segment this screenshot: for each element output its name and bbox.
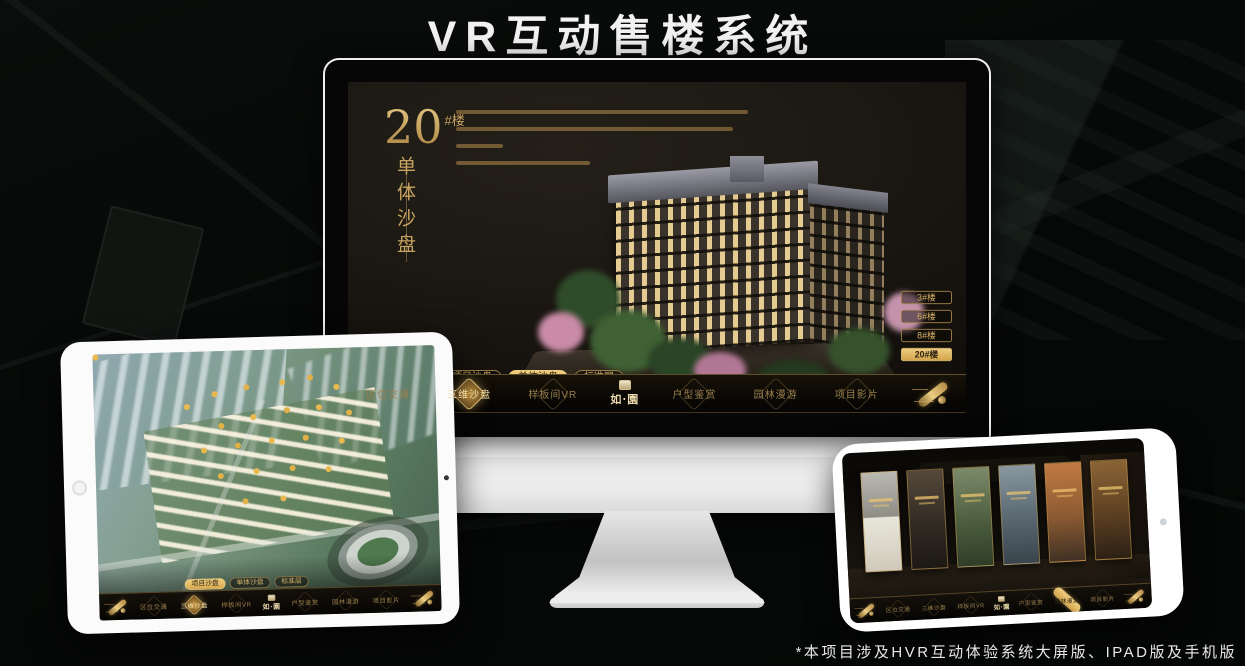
panel-label	[1052, 488, 1076, 492]
brand-logo-text: 如·園	[994, 602, 1011, 612]
floor-button-6[interactable]: 6#楼	[901, 310, 952, 323]
floor-button-8[interactable]: 8#楼	[901, 329, 952, 342]
nav-item-garden-tour[interactable]: 园林漫游	[1052, 592, 1082, 609]
gallery-panel[interactable]	[952, 466, 994, 568]
nav-item-floorplans[interactable]: 户型鉴赏	[289, 593, 322, 611]
page-title: VR互动售楼系统	[0, 2, 1245, 64]
description-line	[456, 144, 503, 148]
description-line	[456, 127, 733, 131]
nav-item-floorplans[interactable]: 户型鉴赏	[668, 380, 720, 407]
brand-logo-text: 如·園	[610, 391, 639, 407]
subtab-single-sandbox[interactable]: 单体沙盘	[230, 577, 271, 589]
seal-icon	[619, 380, 631, 390]
footnote-caption: *本项目涉及HVR互动体验系统大屏版、IPAD版及手机版	[796, 641, 1237, 662]
panel-label	[869, 498, 893, 502]
nav-item-project-film[interactable]: 项目影片	[831, 380, 883, 407]
nav-item-location[interactable]: 区位交通	[137, 597, 170, 615]
gallery-panel[interactable]	[860, 471, 902, 573]
promo-canvas: VR互动售楼系统 20#楼 单体沙盘	[0, 0, 1245, 666]
nav-item-project-film[interactable]: 项目影片	[1088, 590, 1118, 607]
tablet-home-button[interactable]	[72, 480, 87, 495]
phone-device: 区位交通 三维沙盘 样板间VR 如·園 户型鉴赏 园林漫游 项目影片	[831, 427, 1184, 633]
floor-button-20[interactable]: 20#楼	[901, 348, 952, 361]
building-number: 20	[384, 100, 443, 154]
background-plaque	[82, 205, 205, 347]
scene-gallery	[860, 459, 1132, 573]
gallery-panel[interactable]	[1090, 459, 1132, 561]
model-side-facade	[810, 199, 884, 350]
description-line	[456, 110, 748, 114]
scroll-icon[interactable]	[1123, 587, 1146, 605]
building-title: 20#楼 单体沙盘	[384, 104, 465, 276]
title-divider	[406, 166, 407, 262]
panel-label	[961, 493, 985, 497]
seal-icon	[998, 596, 1005, 602]
tablet-device: 项目沙盘 单体沙盘 标准层 区位交通 三维沙盘 样板间VR 如·園 户型鉴赏 园…	[60, 332, 460, 635]
brand-logo: 如·園	[262, 594, 280, 611]
nav-item-garden-tour[interactable]: 园林漫游	[750, 380, 802, 407]
model-roof-tower	[730, 156, 764, 182]
nav-item-showroom-vr[interactable]: 样板间VR	[955, 597, 988, 614]
panel-label	[1007, 491, 1031, 495]
nav-item-floorplans[interactable]: 户型鉴赏	[1016, 594, 1046, 611]
seal-icon	[268, 594, 276, 600]
tablet-camera-icon	[444, 475, 449, 480]
floor-button-3[interactable]: 3#楼	[901, 291, 952, 304]
nav-item-showroom-vr[interactable]: 样板间VR	[219, 595, 255, 613]
panel-label	[915, 496, 939, 500]
nav-item-location[interactable]: 区位交通	[883, 601, 913, 618]
tree	[828, 328, 890, 374]
nav-item-garden-tour[interactable]: 园林漫游	[329, 592, 362, 610]
gallery-panel[interactable]	[1044, 461, 1086, 563]
phone-camera-icon	[1160, 518, 1167, 525]
building-3d-model[interactable]	[498, 152, 928, 407]
scroll-icon[interactable]	[104, 597, 129, 616]
phone-screen: 区位交通 三维沙盘 样板间VR 如·園 户型鉴赏 园林漫游 项目影片	[842, 438, 1152, 624]
gallery-panel[interactable]	[906, 468, 948, 570]
scroll-icon[interactable]	[854, 602, 877, 620]
brand-logo: 如·園	[610, 380, 639, 407]
brand-logo: 如·園	[993, 595, 1010, 611]
scroll-icon[interactable]	[411, 589, 436, 608]
nav-item-project-film[interactable]: 项目影片	[370, 591, 403, 609]
nav-item-3d-sandbox[interactable]: 三维沙盘	[919, 599, 949, 616]
nav-item-3d-sandbox[interactable]: 三维沙盘	[178, 596, 211, 614]
scroll-icon[interactable]	[912, 379, 952, 409]
subtab-project-sandbox[interactable]: 项目沙盘	[185, 578, 226, 590]
floor-button-group: 3#楼 6#楼 8#楼 20#楼	[894, 290, 952, 362]
blossom-tree	[538, 312, 584, 352]
gallery-panel[interactable]	[998, 463, 1040, 565]
monitor-stand-neck	[549, 511, 765, 603]
tablet-screen: 项目沙盘 单体沙盘 标准层 区位交通 三维沙盘 样板间VR 如·園 户型鉴赏 园…	[92, 345, 441, 620]
brand-logo-text: 如·園	[263, 601, 281, 611]
panel-label	[1098, 486, 1122, 490]
nav-item-showroom-vr[interactable]: 样板间VR	[524, 380, 581, 407]
subtab-standard-floor[interactable]: 标准层	[274, 576, 308, 588]
